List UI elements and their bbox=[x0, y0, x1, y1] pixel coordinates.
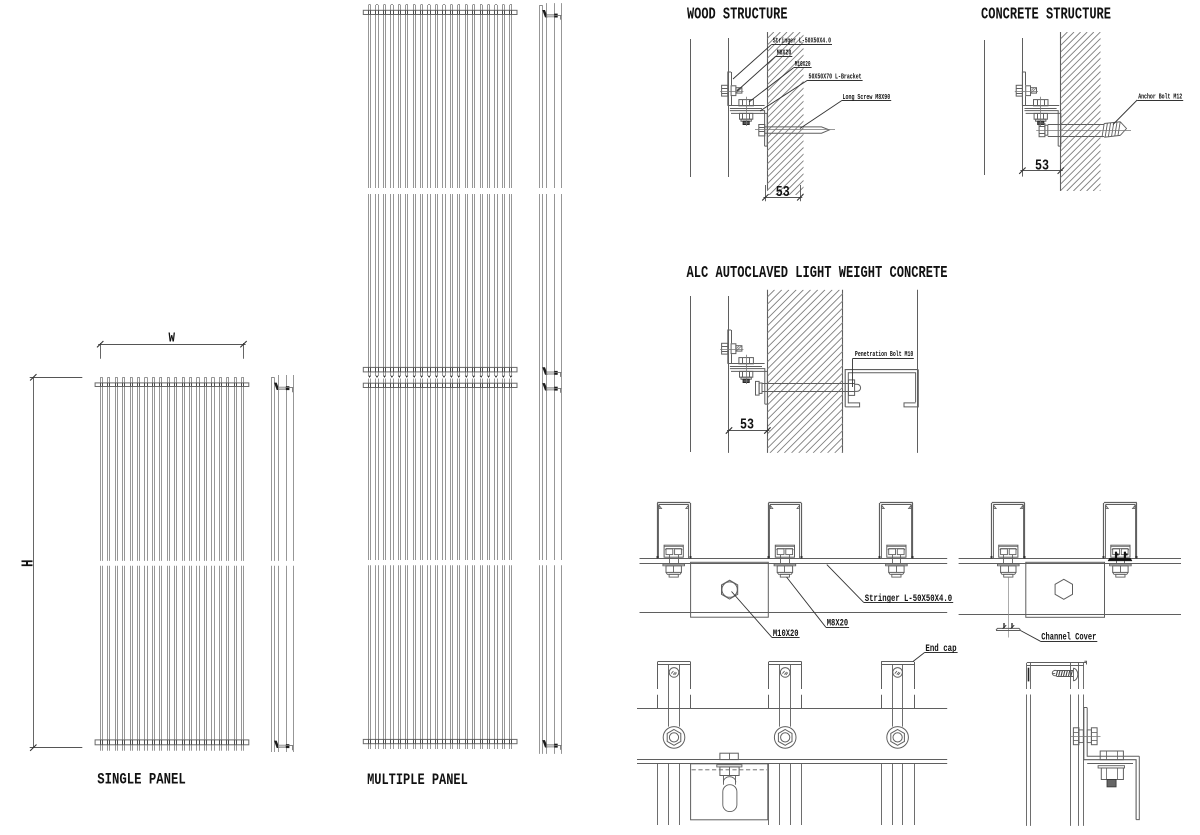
svg-text:ALC AUTOCLAVED LIGHT WEIGHT CO: ALC AUTOCLAVED LIGHT WEIGHT CONCRETE bbox=[687, 263, 948, 282]
svg-text:50X50X70 L-Bracket: 50X50X70 L-Bracket bbox=[809, 74, 862, 82]
svg-text:Penetration Bolt M10: Penetration Bolt M10 bbox=[855, 351, 914, 359]
svg-text:W: W bbox=[169, 331, 176, 346]
svg-text:WOOD STRUCTURE: WOOD STRUCTURE bbox=[687, 5, 788, 24]
svg-text:53: 53 bbox=[1035, 157, 1049, 174]
svg-text:Long Screw M8X90: Long Screw M8X90 bbox=[843, 94, 891, 102]
svg-text:Stringer L-50X50X4.0: Stringer L-50X50X4.0 bbox=[773, 38, 832, 46]
svg-text:M10X20: M10X20 bbox=[795, 61, 811, 69]
svg-text:SINGLE PANEL: SINGLE PANEL bbox=[97, 771, 186, 789]
svg-text:End cap: End cap bbox=[925, 643, 956, 655]
svg-text:M8X20: M8X20 bbox=[827, 619, 848, 630]
svg-text:CONCRETE STRUCTURE: CONCRETE STRUCTURE bbox=[981, 5, 1111, 24]
svg-text:Channel Cover: Channel Cover bbox=[1041, 632, 1096, 644]
svg-text:H: H bbox=[19, 559, 38, 567]
svg-text:M8X20: M8X20 bbox=[777, 50, 792, 58]
svg-text:53: 53 bbox=[740, 416, 754, 433]
svg-text:Anchor Bolt M12: Anchor Bolt M12 bbox=[1138, 93, 1182, 101]
svg-text:M10X20: M10X20 bbox=[773, 629, 799, 640]
svg-text:Stringer L-50X50X4.0: Stringer L-50X50X4.0 bbox=[865, 593, 953, 605]
svg-text:53: 53 bbox=[776, 184, 790, 201]
svg-text:MULTIPLE PANEL: MULTIPLE PANEL bbox=[367, 771, 468, 789]
